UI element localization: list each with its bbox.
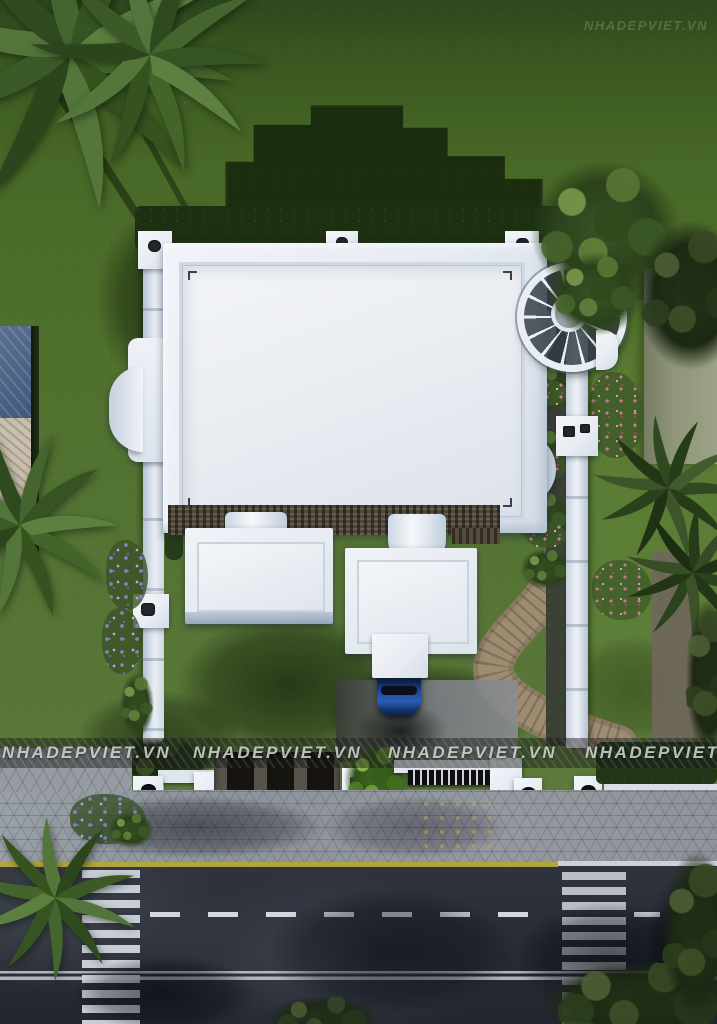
palm-tree-left	[0, 420, 125, 630]
annex-inner-roof	[197, 542, 325, 612]
car-windshield	[381, 686, 417, 695]
garden-hedge	[520, 548, 572, 590]
watermark-text: NHADEPVIET.VN	[585, 743, 717, 763]
road-overhang-tree	[662, 850, 717, 1020]
palm-tree-sidewalk	[0, 808, 145, 988]
watermark-corner-text: NHADEPVIET.VN	[584, 18, 708, 33]
gazebo-landing	[596, 330, 618, 370]
left-bushes	[120, 672, 154, 738]
drain-grate	[408, 770, 494, 785]
roof-corner-mark	[503, 498, 512, 507]
annex-shade	[185, 612, 333, 624]
roof-corner-mark	[188, 271, 197, 280]
roof-corner-mark	[503, 271, 512, 280]
villa-inner-roof	[179, 262, 525, 520]
aerial-villa-render: NHADEPVIET.VN NHADEPVIET.VN NHADEPVIET.V…	[0, 0, 717, 1024]
shingle-patch	[452, 528, 500, 544]
palm-tree-top-left	[15, 0, 285, 190]
entrance-canopy	[372, 634, 428, 678]
watermark-text: NHADEPVIET.VN	[2, 743, 171, 763]
gold-paver-accents	[420, 798, 500, 854]
gazebo-tree-canopy	[548, 252, 644, 336]
watermark-text: NHADEPVIET.VN	[388, 743, 557, 763]
watermark-band: NHADEPVIET.VN NHADEPVIET.VN NHADEPVIET.V…	[0, 738, 717, 768]
watermark-text: NHADEPVIET.VN	[193, 743, 362, 763]
porch-inner-roof	[357, 560, 469, 644]
